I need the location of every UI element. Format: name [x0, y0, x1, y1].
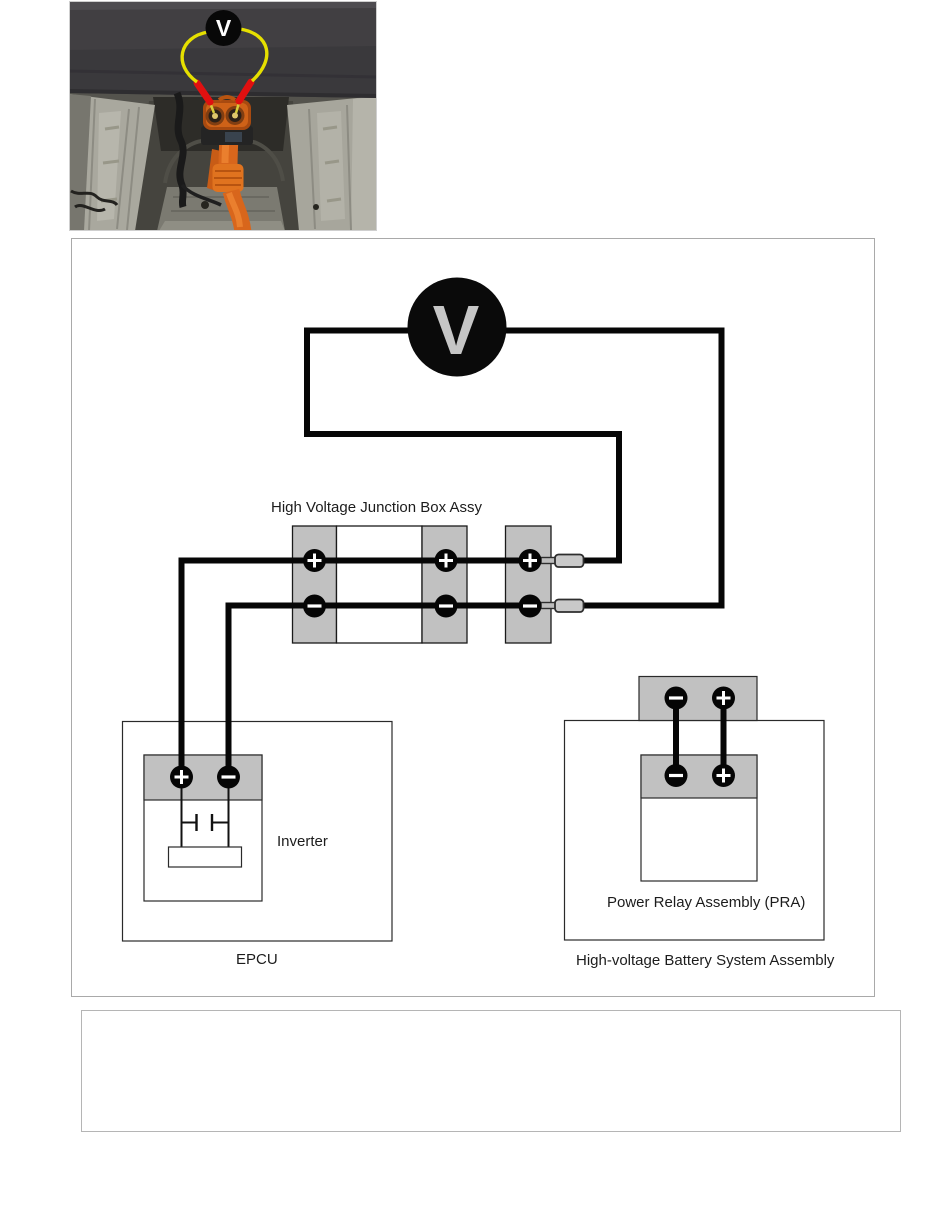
svg-text:V: V: [433, 291, 480, 369]
